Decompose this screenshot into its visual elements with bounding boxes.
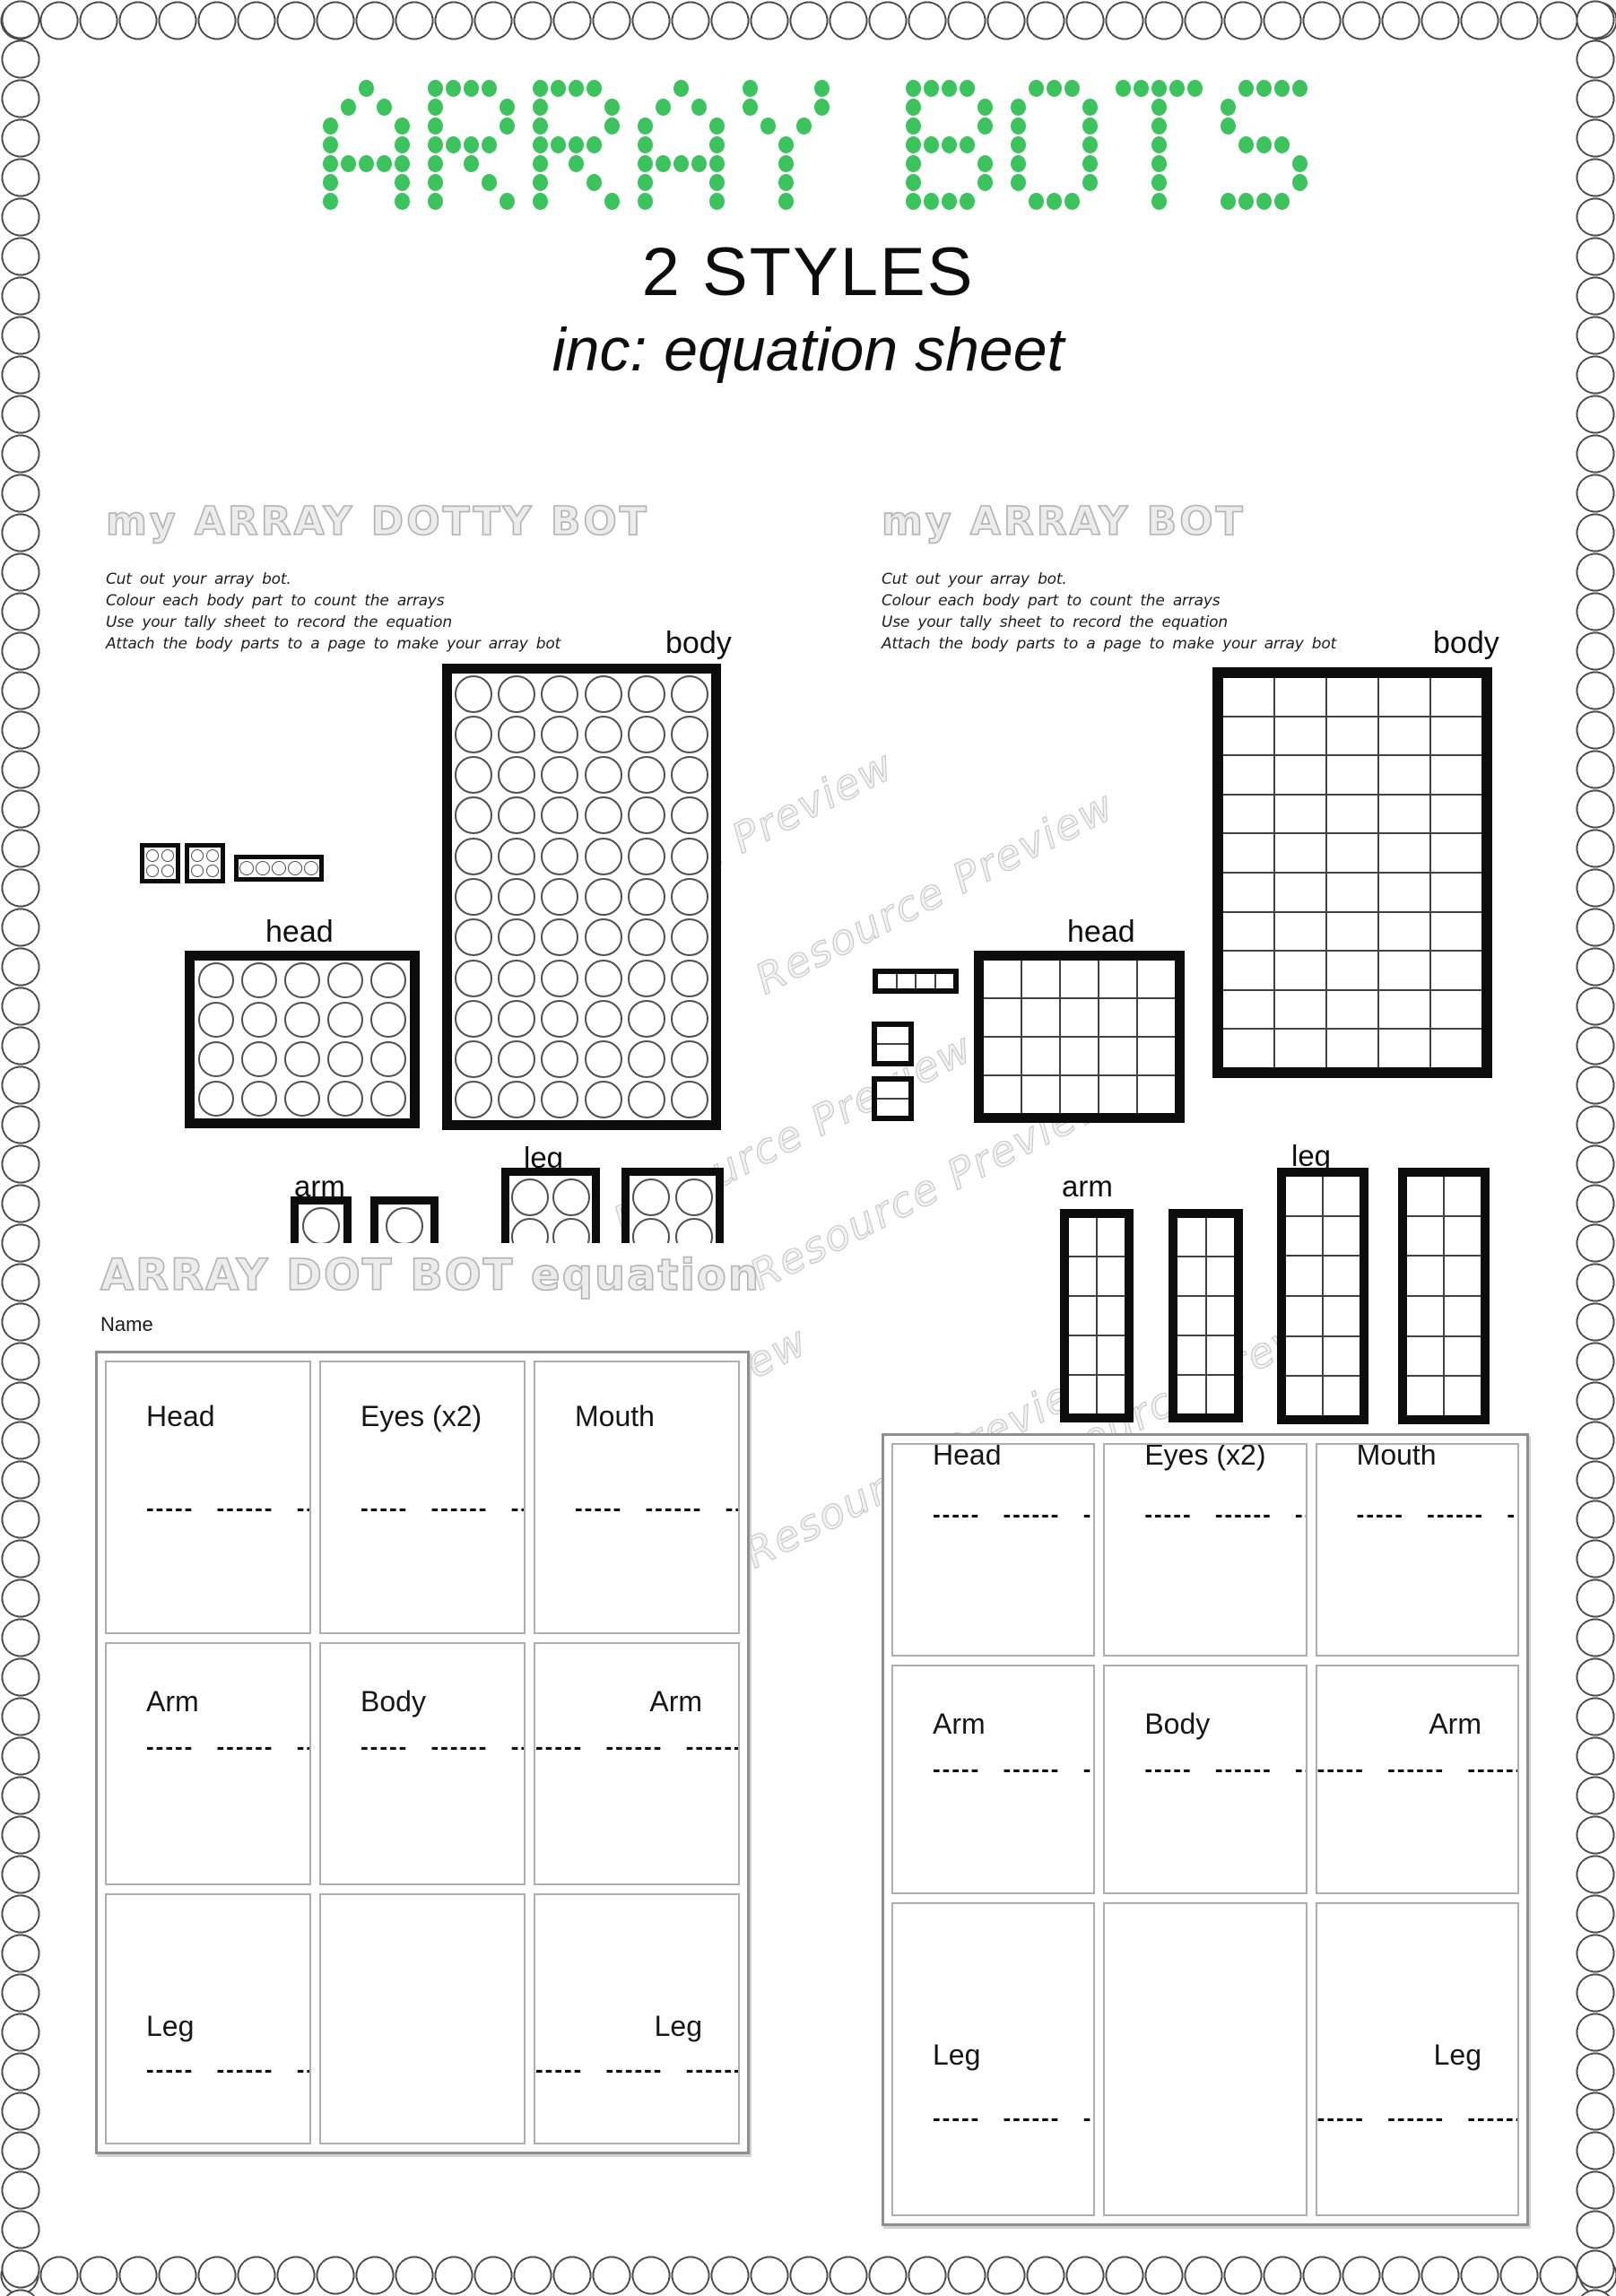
array-dot [191,849,204,862]
array-cell [1138,999,1175,1036]
array-cell [1069,1218,1096,1256]
array-dot [585,878,622,916]
array-cell [1379,796,1429,833]
equation-dash-line: ----- ------ ------ [933,2104,1093,2132]
title-dot [533,193,548,210]
array-cell [1275,678,1325,716]
array-dot [161,865,174,877]
title-dot [1134,80,1149,97]
array-eye-grid-box [872,1022,914,1066]
array-cell [299,1205,343,1243]
array-dot [628,918,665,956]
title-dot [1256,136,1272,153]
array-cell [324,961,367,1000]
array-cell [281,1039,324,1079]
array-cell [255,859,271,877]
equation-cell-mouth: Mouth----- ------ ------ [1316,1443,1519,1657]
array-cell [1207,1376,1235,1413]
array-dot [206,849,219,862]
title-dot [814,80,830,97]
array-cell [281,1000,324,1039]
title-dot [709,174,725,191]
array-cell [1327,874,1377,911]
dot-letter [741,79,830,211]
array-cell [1445,1217,1481,1256]
dotty-body-array-box [442,664,721,1130]
equation-dash-line: ----- ------ ------ [1317,2104,1481,2132]
equation-part-label: Arm [933,1708,1093,1741]
array-cell [668,876,711,917]
array-cell [1223,913,1273,951]
array-cell [984,999,1021,1036]
equation-part-label: Arm [1317,1708,1481,1741]
array-cell [668,674,711,714]
array-cell [1379,678,1429,716]
array-dot [628,1081,665,1118]
array-dot [671,756,708,794]
instruction-line: Attach the body parts to a page to make … [882,633,1336,655]
array-cell [452,755,495,796]
array-eye-grid-box [872,1076,914,1121]
page-title-dots [321,79,1308,211]
instruction-line: Colour each body part to count the array… [106,590,560,612]
dotty-sheet-title: my ARRAY DOTTY BOT [106,499,649,544]
title-dot [533,80,548,97]
array-dot [370,1002,406,1038]
array-cell [1327,717,1377,755]
title-dot [533,99,548,116]
equation-part-label: Leg [933,2039,1093,2072]
title-dot [906,193,921,210]
array-dot [498,756,535,794]
title-dot [1151,99,1167,116]
equation-dash-line: ----- ------ ------ [361,1494,524,1522]
title-dot [1169,80,1185,97]
array-cell [1286,1257,1322,1295]
title-dot [977,155,993,172]
title-dot [500,117,515,135]
title-dot [551,136,566,153]
array-cell [378,1205,430,1243]
title-dot [604,117,620,135]
array-cell [452,1039,495,1079]
array-cell [1407,1257,1443,1295]
title-dot [1011,99,1026,116]
array-cell [668,1080,711,1120]
title-dot [1292,155,1308,172]
array-cell [1275,717,1325,755]
equation-part-label: Eyes (x2) [361,1400,524,1433]
array-cell [452,714,495,754]
title-dot [428,193,443,210]
array-cell [551,1176,592,1215]
title-dot [428,174,443,191]
worksheet-preview-page: 2 STYLES inc: equation sheet Resource Pr… [0,0,1616,2296]
title-dot [377,99,392,116]
equation-part-label: Head [146,1400,309,1433]
array-cell [1098,1336,1125,1374]
title-dot [1082,155,1098,172]
array-leg-label: leg [1291,1141,1331,1170]
dotty-arm-array-box [291,1196,352,1243]
array-cell [1275,834,1325,872]
array-cell [668,755,711,796]
array-cell [1022,1076,1059,1113]
dot-letter [1114,79,1203,211]
title-dot [924,136,939,153]
title-dot [1116,80,1131,97]
title-dot [1082,174,1098,191]
array-cell [495,876,538,917]
array-dot [552,1218,590,1243]
array-dot [511,1218,549,1243]
array-body-label: body [1433,628,1499,658]
title-dot [924,193,939,210]
array-cell [582,755,625,796]
equation-part-label: Eyes (x2) [1144,1443,1305,1472]
title-dot [604,99,620,116]
title-dot [673,155,689,172]
array-cell [1327,834,1377,872]
array-dot [370,1081,406,1117]
border-circles-top [0,0,1616,41]
instruction-line: Cut out your array bot. [106,569,560,590]
array-cell [495,796,538,836]
array-cell [582,1039,625,1079]
array-leg-grid-box [1398,1168,1490,1424]
title-dot [1238,193,1254,210]
array-dot [585,918,622,956]
array-dot [541,918,578,956]
title-dot [760,117,776,135]
array-dot [585,960,622,997]
array-cell [984,1076,1021,1113]
title-dot [709,193,725,210]
array-cell [1275,913,1325,951]
title-dot [977,99,993,116]
equation-dash-line: ----- ------ ------ [146,1733,309,1761]
title-dot [586,80,602,97]
title-dot [395,136,410,153]
array-cell [452,674,495,714]
array-cell [281,961,324,1000]
dot-letter [904,79,994,211]
array-cell [538,796,581,836]
array-cell [195,1079,238,1118]
title-dot [743,99,758,116]
dot-letter [531,79,621,211]
array-cell [877,1045,908,1061]
array-cell [452,998,495,1039]
array-cell [452,836,495,876]
equation-sheet-title: ARRAY DOT BOT equation [100,1250,760,1300]
title-dot [709,155,725,172]
name-field-label: Name [100,1313,153,1336]
array-cell [1069,1257,1096,1295]
array-cell [1324,1377,1360,1415]
array-cell [205,864,222,880]
array-cell [1327,991,1377,1029]
array-arm-grid-box [1169,1209,1243,1422]
equation-part-label: Leg [1317,2039,1481,2072]
title-dot [533,136,548,153]
array-cell [582,796,625,836]
array-cell [1431,717,1481,755]
array-cell [1177,1218,1205,1256]
title-dot [1082,117,1098,135]
title-dot [924,80,939,97]
array-dot [671,796,708,834]
array-dot [498,1000,535,1038]
array-cell [625,876,668,917]
title-dot [428,136,443,153]
array-cell [1223,796,1273,833]
dotty-head-label: head [265,917,334,947]
array-cell [1022,999,1059,1036]
array-dot [541,756,578,794]
equation-cell-leg: Leg----- ------ ------ [1316,1902,1519,2216]
array-cell [1327,1030,1377,1067]
array-cell [1431,913,1481,951]
title-dot [1256,80,1272,97]
title-dot [1151,155,1167,172]
array-dot [541,838,578,875]
array-cell [668,836,711,876]
array-cell [1379,952,1429,989]
title-dot [1011,136,1026,153]
array-cell [1022,961,1059,997]
array-dot [585,756,622,794]
array-cell [271,859,287,877]
title-dot [428,99,443,116]
array-cell [1223,717,1273,755]
array-cell [936,974,954,988]
array-dot [498,796,535,834]
array-dot [628,796,665,834]
title-dot [341,155,356,172]
array-dot [498,878,535,916]
instruction-line: Attach the body parts to a page to make … [106,633,560,655]
array-cell [1098,1376,1125,1413]
array-cell [1431,952,1481,989]
array-cell [495,958,538,998]
array-cell [281,1079,324,1118]
array-cell [495,755,538,796]
array-cell [538,836,581,876]
array-cell [1275,1030,1325,1067]
array-cell [452,876,495,917]
array-cell [538,876,581,917]
array-dot [455,716,492,753]
array-dot [206,865,219,877]
title-dot [1221,117,1236,135]
array-dot [455,675,492,713]
title-dot [500,193,515,210]
array-dot [455,918,492,956]
title-dot [446,80,461,97]
array-cell [205,848,222,864]
array-cell [1061,999,1098,1036]
array-dot [585,1000,622,1038]
title-dot [1047,193,1062,210]
equation-part-label: Body [1144,1708,1305,1741]
title-dot [1011,117,1026,135]
array-cell [1324,1297,1360,1335]
array-cell [538,958,581,998]
array-dot [272,861,286,875]
array-cell [625,796,668,836]
array-dot [541,796,578,834]
array-cell [1223,678,1273,716]
array-dot [628,1040,665,1078]
array-dot [671,1081,708,1118]
array-dot [370,962,406,998]
array-cell [1324,1337,1360,1376]
array-cell [1327,678,1377,716]
title-dot [1292,80,1308,97]
array-cell [1177,1336,1205,1374]
array-dot [256,861,270,875]
title-dot [942,136,957,153]
array-dot [327,1002,363,1038]
array-dot [284,1002,320,1038]
array-dot [671,878,708,916]
title-dot [395,155,410,172]
border-circles-bottom [0,2255,1616,2296]
array-cell [1431,834,1481,872]
array-dot [541,675,578,713]
array-cell [195,961,238,1000]
array-cell [668,714,711,754]
array-cell [239,859,255,877]
array-cell [495,918,538,958]
array-dot [455,1081,492,1118]
array-body-grid-box [1212,667,1492,1078]
title-dot [323,193,338,210]
array-cell [238,1000,281,1039]
dot-letter-space [846,79,889,211]
array-cell [238,1079,281,1118]
title-dot [377,155,392,172]
array-dot [541,1040,578,1078]
array-cell [1223,756,1273,794]
array-dot [498,960,535,997]
array-dot [585,796,622,834]
array-cell [1207,1336,1235,1374]
title-dot [395,174,410,191]
array-dot [198,962,234,998]
array-dot [671,716,708,753]
array-dot [541,878,578,916]
array-dot [498,838,535,875]
array-dot [541,716,578,753]
title-dot [906,117,921,135]
array-cell [495,1080,538,1120]
array-cell [625,998,668,1039]
array-dot [628,960,665,997]
equation-part-label: Mouth [1357,1443,1517,1472]
array-cell [877,1082,908,1098]
array-cell [582,836,625,876]
array-cell [303,859,319,877]
equation-cell-body: Body----- ------ ------ [1103,1665,1307,1894]
dot-letter [636,79,725,211]
title-dot [482,174,497,191]
array-cell [625,714,668,754]
title-dot [942,193,957,210]
array-dot [498,1040,535,1078]
instruction-line: Colour each body part to count the array… [882,590,1336,612]
title-dot [1064,80,1080,97]
title-dot [1238,136,1254,153]
dotty-arm-array-box [370,1196,439,1243]
array-dot [304,861,318,875]
array-cell [1286,1337,1322,1376]
array-cell [1061,1076,1098,1113]
array-cell [1379,991,1429,1029]
array-cell [1177,1257,1205,1295]
array-dot [284,1041,320,1077]
array-cell [668,796,711,836]
array-dot [455,1000,492,1038]
array-cell [1327,756,1377,794]
array-cell [1286,1377,1322,1415]
array-cell [495,674,538,714]
array-cell [144,864,161,880]
array-cell [673,1176,716,1215]
title-dot [691,99,707,116]
equation-cell-eyes-x2-: Eyes (x2)----- ------ ------ [319,1361,526,1634]
array-cell [161,864,177,880]
array-cell [1431,991,1481,1029]
array-cell [1324,1217,1360,1256]
array-cell [195,1000,238,1039]
title-dot [960,136,975,153]
array-cell [509,1215,551,1243]
array-dot [146,849,159,862]
array-dot [671,1000,708,1038]
array-dot [284,962,320,998]
array-cell [1379,717,1429,755]
array-cell [1431,678,1481,716]
array-cell [324,1039,367,1079]
array-cell [625,918,668,958]
array-cell [1445,1257,1481,1295]
array-cell [1223,952,1273,989]
title-dot [638,136,653,153]
array-cell [1431,874,1481,911]
array-cell [1379,874,1429,911]
dotty-leg-array-box [621,1168,724,1243]
array-cell [673,1215,716,1243]
title-dot [586,174,602,191]
array-cell [1445,1377,1481,1415]
title-dot [977,117,993,135]
array-dot [498,1081,535,1118]
title-dot [1029,80,1044,97]
array-sheet-instructions: Cut out your array bot.Colour each body … [882,569,1336,655]
title-dot [656,99,671,116]
array-dot [161,849,174,862]
title-dot [1274,193,1290,210]
array-dot [671,675,708,713]
title-dot [1292,174,1308,191]
array-dot [585,838,622,875]
array-head-grid-box [974,951,1185,1123]
array-cell [189,848,205,864]
array-cell [1223,991,1273,1029]
dotty-sheet-instructions: Cut out your array bot.Colour each body … [106,569,560,655]
